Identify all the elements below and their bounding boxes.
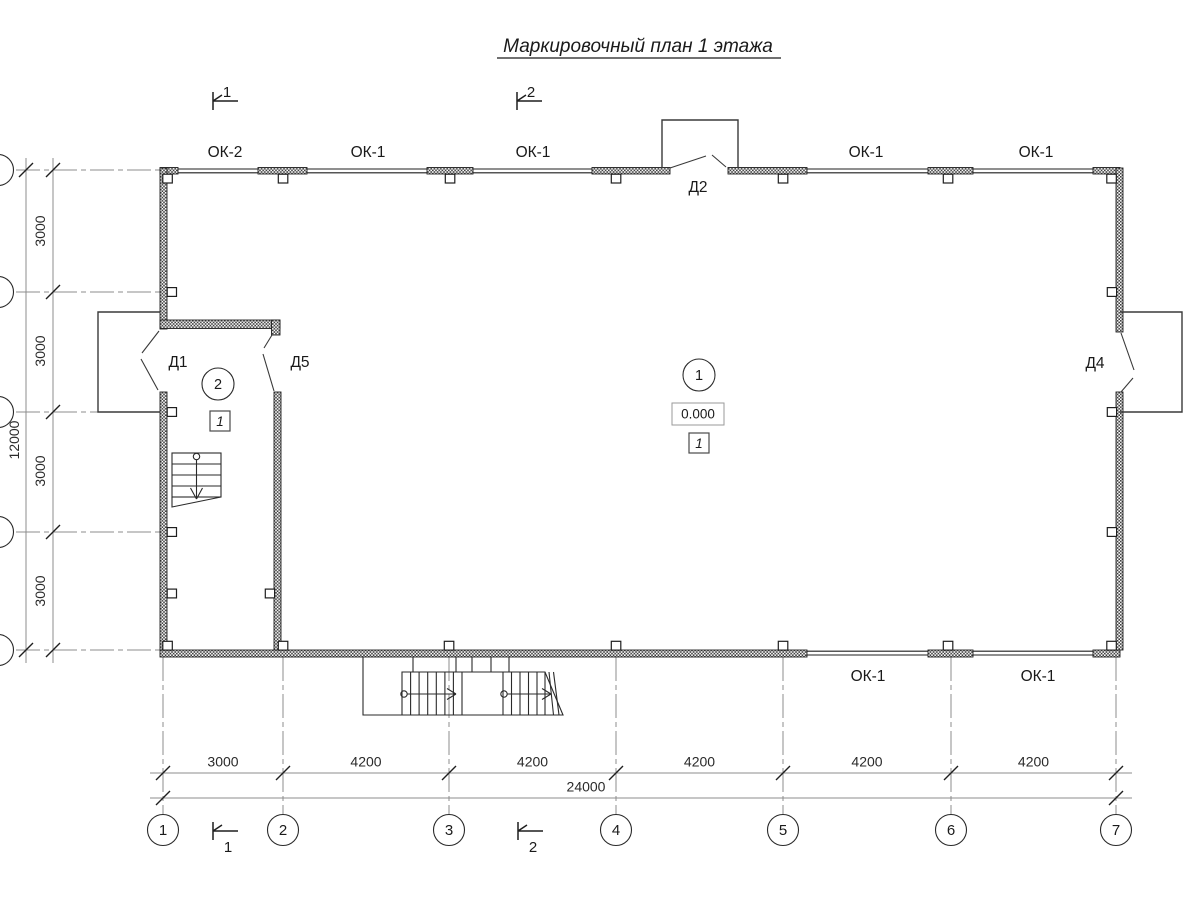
window-ok1 [307,169,427,173]
window-label: ОК-1 [849,144,884,161]
dim-total-label: 24000 [567,779,606,795]
window-label: ОК-1 [351,144,386,161]
floor-plan: Маркировочный план 1 этажа 1 2 [0,0,1200,900]
porch-top [662,120,738,168]
dim-label: 3000 [32,455,48,486]
axis-number: 1 [159,822,167,839]
column-marks [163,174,1117,650]
section-mark-top-1: 1 [213,84,238,110]
window-label: ОК-1 [851,668,886,685]
porch-left [98,312,160,412]
dim-label: 4200 [517,754,548,770]
axis-number: 4 [612,822,620,839]
finish-mark: 1 [695,436,703,451]
room-number: 2 [214,377,222,393]
right-wall-upper [1116,168,1123,332]
dim-label: 3000 [32,575,48,606]
stair-direction-arrow [191,460,203,499]
door-label-d4: Д4 [1085,355,1104,372]
section-mark-top-2: 2 [517,84,542,110]
top-wall-pier [928,168,973,175]
section-mark-bottom-1: 1 [213,822,238,856]
room-marker-main: 1 0.000 1 [672,359,724,453]
section-mark-label: 1 [224,839,232,856]
stair-direction-arrow [407,689,456,700]
dim-label: 3000 [32,335,48,366]
room-number: 1 [695,368,703,384]
dim-total-label: 12000 [6,420,22,459]
door-label-d2: Д2 [688,179,707,196]
bottom-wall [160,650,807,657]
dim-label: 3000 [207,754,238,770]
partition-wall-jamb [272,320,281,335]
porches [98,120,1182,412]
section-mark-bottom-2: 2 [518,822,543,856]
door-labels: Д2 Д1 Д5 Д4 [168,179,1104,372]
top-wall-pier [728,168,807,175]
window-label: ОК-1 [516,144,551,161]
window-labels: ОК-2 ОК-1 ОК-1 ОК-1 ОК-1 ОК-1 ОК-1 [208,144,1056,685]
dim-label: 3000 [32,215,48,246]
bottom-wall-pier [1093,650,1120,657]
door-leaf-d5 [263,335,274,391]
axis-number: 3 [445,822,453,839]
door-leaf-d2 [670,155,726,168]
drawing-sheet: Маркировочный план 1 этажа 1 2 [0,0,1200,900]
page-title: Маркировочный план 1 этажа [503,36,773,57]
porch-right [1120,312,1182,412]
finish-mark: 1 [216,414,224,429]
axis-number: 5 [779,822,787,839]
right-wall-lower [1116,392,1123,650]
top-wall-pier [427,168,473,175]
section-mark-label: 2 [527,84,535,101]
window-ok1 [973,169,1093,173]
window-label: ОК-1 [1021,668,1056,685]
exterior-stair [363,657,563,715]
axis-number: 2 [279,822,287,839]
partition-wall-vertical [274,392,281,650]
partition-wall-horizontal [160,320,280,329]
elevation-mark: 0.000 [681,407,715,422]
window-ok1 [807,651,928,655]
door-label-d1: Д1 [168,354,187,371]
top-wall-pier [592,168,670,175]
left-wall-lower [160,392,167,650]
section-mark-label: 1 [223,84,231,101]
window-ok1 [807,169,928,173]
bottom-wall-pier [928,650,973,657]
dim-label: 4200 [1018,754,1049,770]
window-ok2 [178,169,258,173]
dim-label: 4200 [684,754,715,770]
exterior-walls [160,168,1123,658]
room-marker-stair-room: 2 1 [202,368,234,431]
dim-label: 4200 [851,754,882,770]
dim-label: 4200 [350,754,381,770]
section-mark-label: 2 [529,839,537,856]
window-ok1 [973,651,1093,655]
dimensions-left: 3000 3000 3000 3000 12000 [6,158,60,663]
top-wall-pier [258,168,307,175]
column-axis-bubbles: 1 2 3 4 5 6 7 [148,815,1132,846]
window-ok1 [473,169,592,173]
door-leaf-d4 [1121,333,1134,392]
door-leaf-d1 [141,331,159,390]
door-label-d5: Д5 [290,354,309,371]
title-block: Маркировочный план 1 этажа [497,36,781,58]
axis-grid-lines [16,170,1116,814]
left-wall-upper [160,168,167,329]
window-label: ОК-2 [208,144,243,161]
window-label: ОК-1 [1019,144,1054,161]
interior-stair [172,453,221,507]
axis-number: 6 [947,822,955,839]
axis-number: 7 [1112,822,1120,839]
dimensions-bottom: 3000 4200 4200 4200 4200 4200 24000 [150,754,1132,806]
row-axis-bubbles [0,155,14,666]
